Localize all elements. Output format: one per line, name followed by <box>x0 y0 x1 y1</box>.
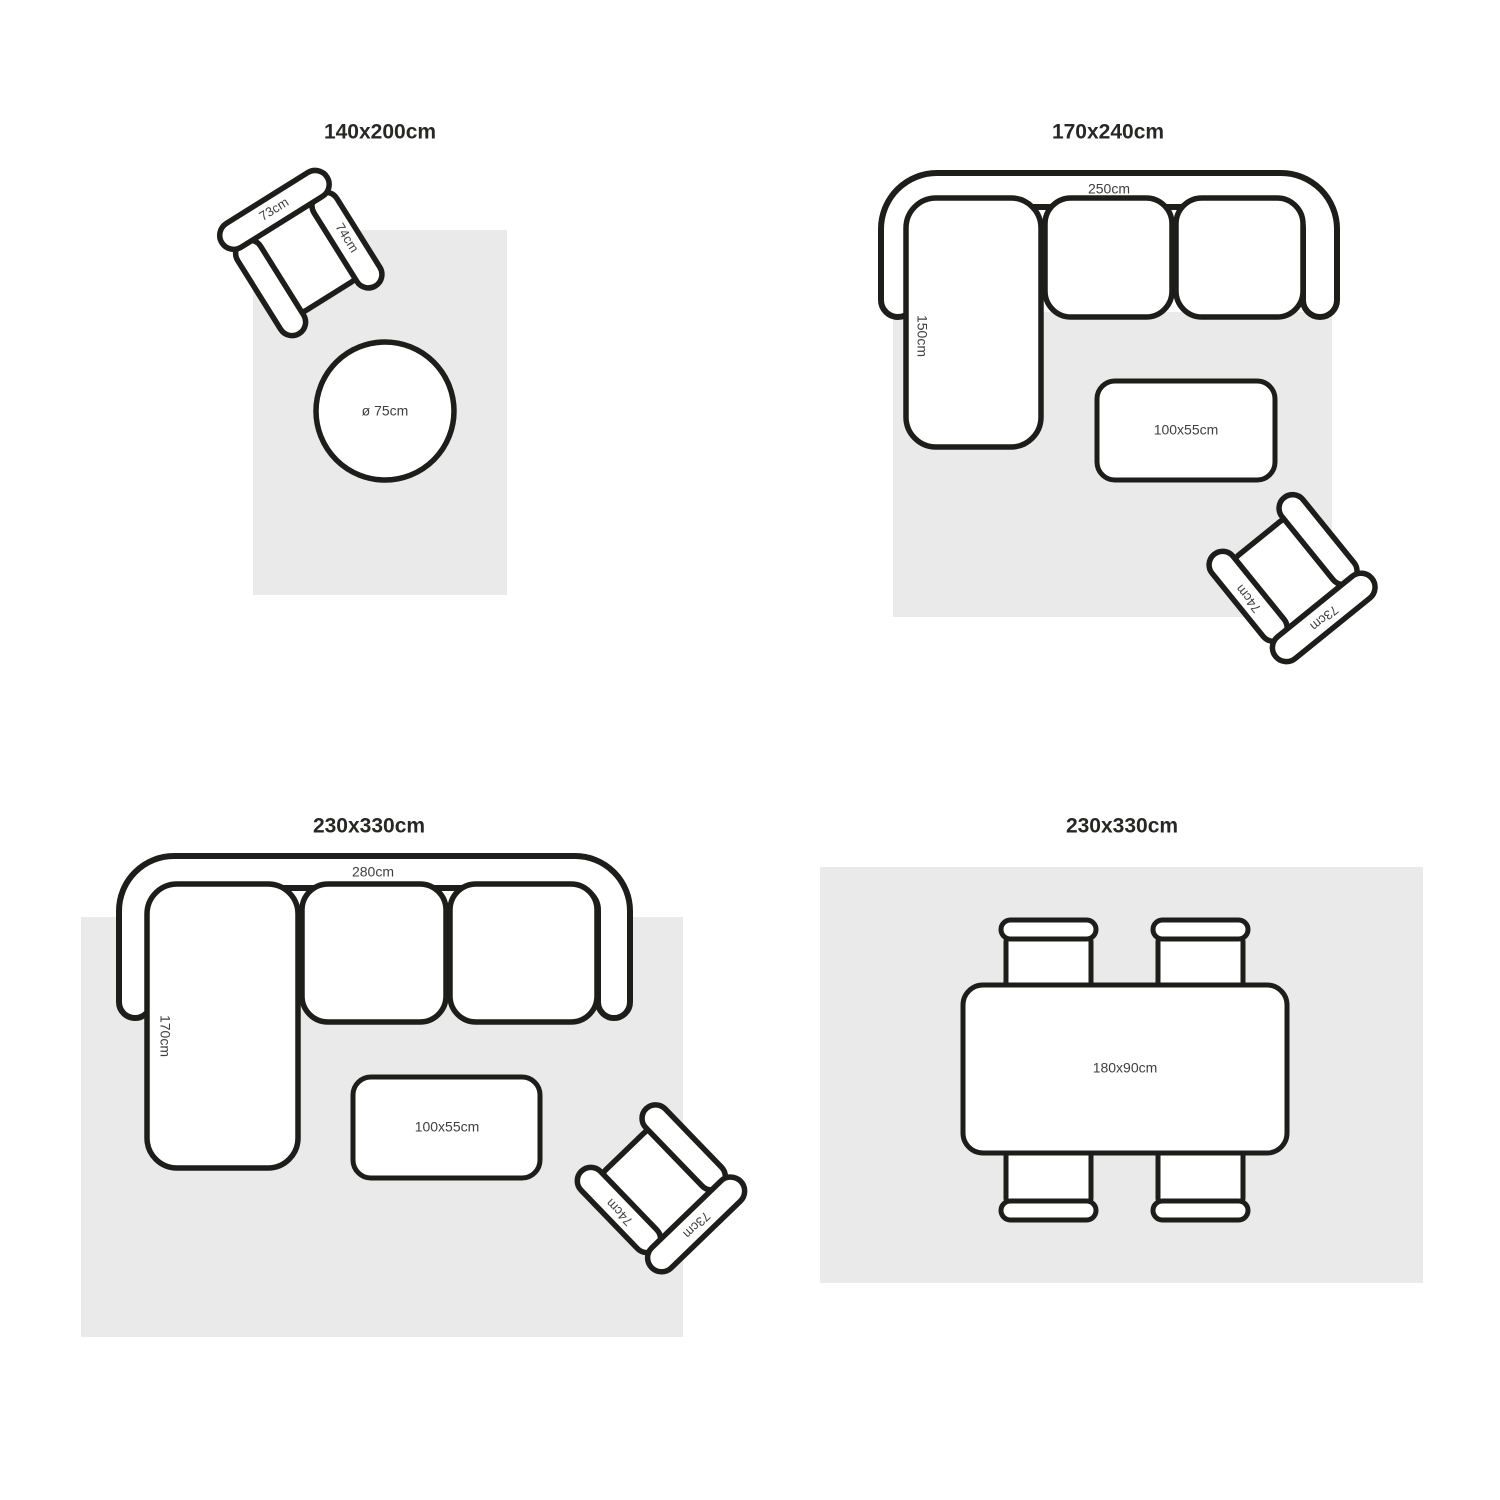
coffee-table-dimension: 100x55cm <box>415 1119 480 1135</box>
dining-chair-back <box>1001 1201 1096 1220</box>
scene-230x330-living: 230x330cm 280cm 170cm 100x55cm 73cm 74cm <box>81 815 750 1337</box>
scene-230x330-dining: 230x330cm 180x90cm <box>820 815 1423 1283</box>
rug-size-guide: 140x200cm 73cm 74cm ø 75cm 170x240cm 250… <box>0 0 1500 1500</box>
scene-title: 140x200cm <box>324 121 436 144</box>
scene-title: 230x330cm <box>313 815 425 838</box>
sofa-cushion <box>302 884 446 1022</box>
dining-table-dimension: 180x90cm <box>1093 1060 1158 1076</box>
coffee-table-dimension: 100x55cm <box>1154 422 1219 438</box>
sofa-depth-dimension: 170cm <box>157 1015 173 1057</box>
sofa-width-dimension: 250cm <box>1088 181 1130 197</box>
sofa-cushion <box>1176 198 1303 317</box>
round-table-dimension: ø 75cm <box>362 403 409 419</box>
scene-140x200: 140x200cm 73cm 74cm ø 75cm <box>214 121 507 595</box>
dining-chair-back <box>1001 920 1096 939</box>
rug-size-guide-diagram: 140x200cm 73cm 74cm ø 75cm 170x240cm 250… <box>0 0 1500 1500</box>
sofa-depth-dimension: 150cm <box>914 315 930 357</box>
dining-chair-back <box>1153 1201 1248 1220</box>
scene-title: 230x330cm <box>1066 815 1178 838</box>
sofa-cushion <box>1045 198 1172 317</box>
dining-chair-back <box>1153 920 1248 939</box>
scene-170x240: 170x240cm 250cm 150cm 100x55cm 73cm 74cm <box>881 121 1381 668</box>
scene-title: 170x240cm <box>1052 121 1164 144</box>
sofa-cushion <box>450 884 597 1022</box>
sofa-width-dimension: 280cm <box>352 864 394 880</box>
